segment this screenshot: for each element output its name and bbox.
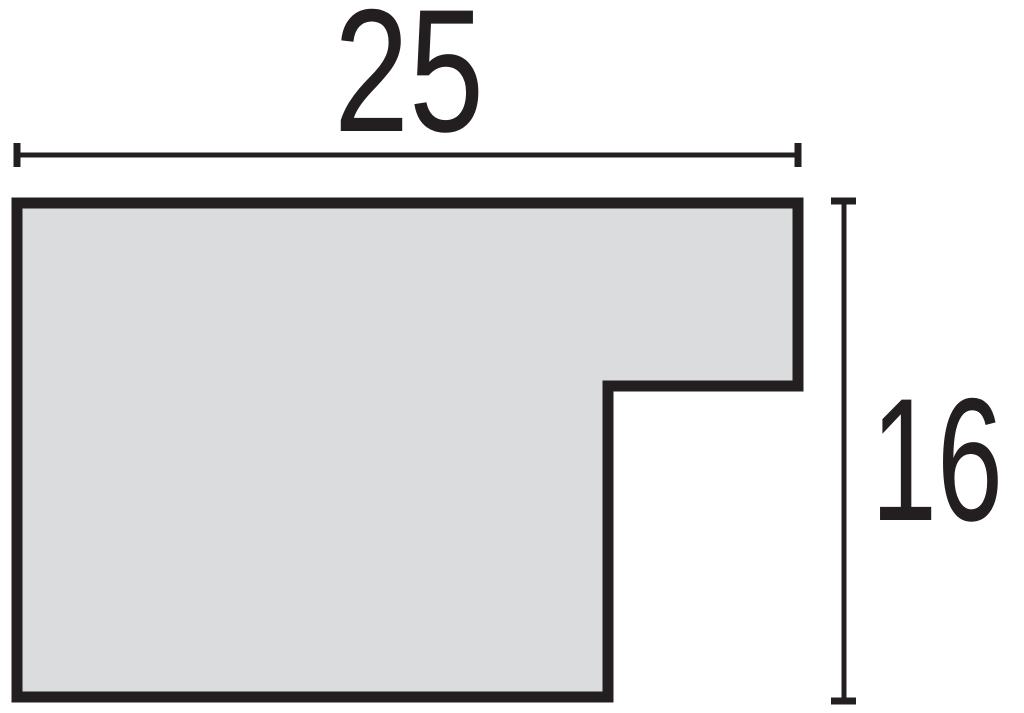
width-dimension-label: 25 [334,0,484,169]
moulding-profile-shape [17,203,798,697]
height-dimension: 16 [831,201,1003,701]
height-dimension-label: 16 [871,363,1003,558]
width-dimension: 25 [17,0,798,169]
profile-drawing: 25 16 [0,0,1024,713]
drawing-canvas: 25 16 [0,0,1024,713]
